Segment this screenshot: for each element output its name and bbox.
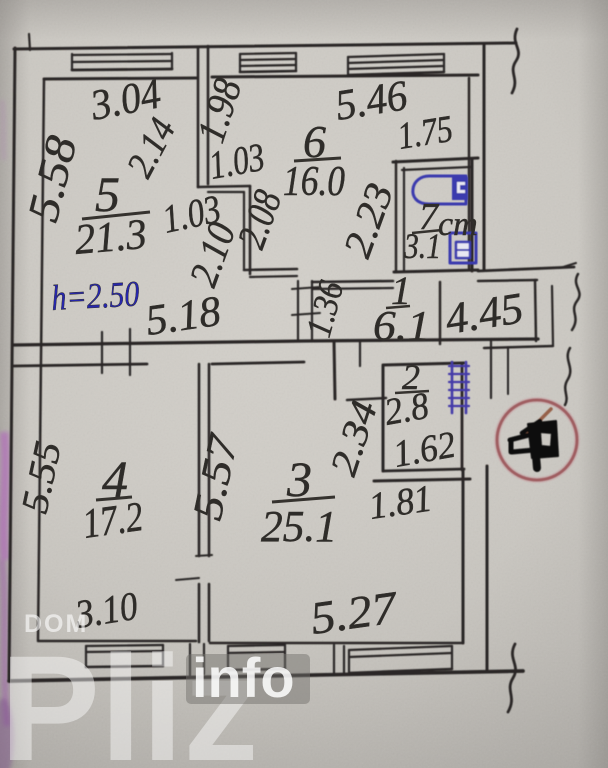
svg-text:info: info: [192, 646, 295, 709]
svg-text:2.8: 2.8: [381, 385, 432, 434]
svg-text:3.1: 3.1: [403, 226, 441, 266]
svg-text:1.75: 1.75: [395, 108, 456, 158]
svg-text:16.0: 16.0: [283, 159, 345, 205]
svg-text:h=2.50: h=2.50: [50, 273, 140, 318]
svg-text:21.3: 21.3: [73, 211, 149, 264]
svg-text:6.1: 6.1: [373, 304, 430, 350]
svg-text:ст: ст: [438, 206, 478, 243]
svg-text:1.81: 1.81: [366, 478, 434, 528]
svg-text:25.1: 25.1: [261, 502, 337, 551]
svg-text:17.2: 17.2: [80, 494, 146, 548]
